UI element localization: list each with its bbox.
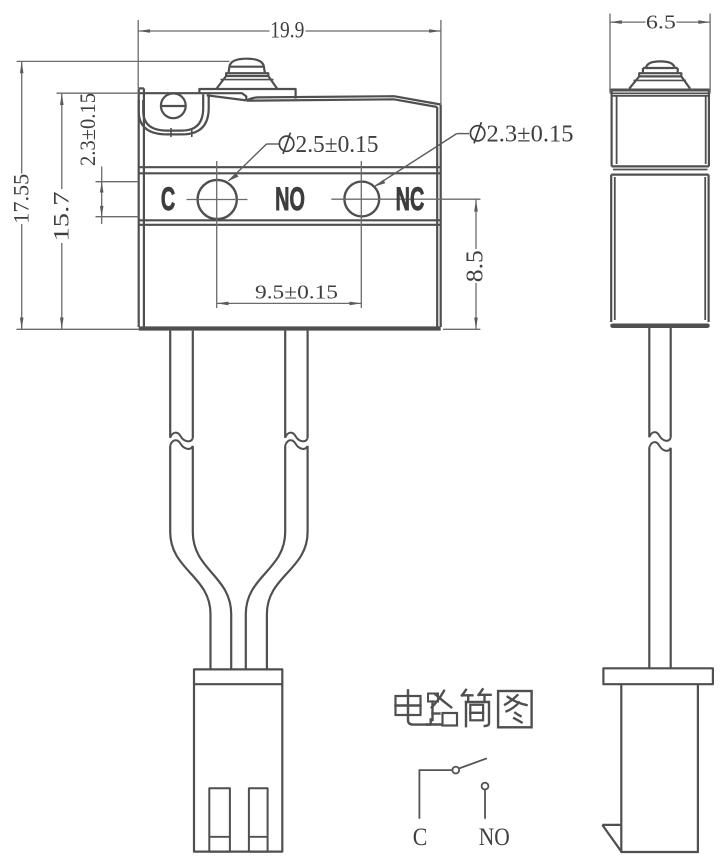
svg-text:2.3±0.15: 2.3±0.15 (487, 122, 574, 148)
svg-text:NC: NC (396, 181, 425, 217)
svg-text:15.7: 15.7 (49, 192, 74, 242)
svg-text:2.3±0.15: 2.3±0.15 (75, 93, 100, 166)
svg-text:NO: NO (275, 181, 305, 217)
svg-text:8.5: 8.5 (463, 250, 489, 282)
svg-text:C: C (161, 181, 175, 217)
svg-text:C: C (413, 824, 428, 851)
svg-text:2.5±0.15: 2.5±0.15 (296, 132, 379, 158)
svg-text:19.9: 19.9 (270, 18, 304, 43)
svg-text:17.55: 17.55 (9, 174, 34, 224)
svg-text:6.5: 6.5 (646, 12, 676, 34)
svg-text:9.5±0.15: 9.5±0.15 (255, 282, 338, 304)
svg-text:NO: NO (479, 824, 510, 851)
